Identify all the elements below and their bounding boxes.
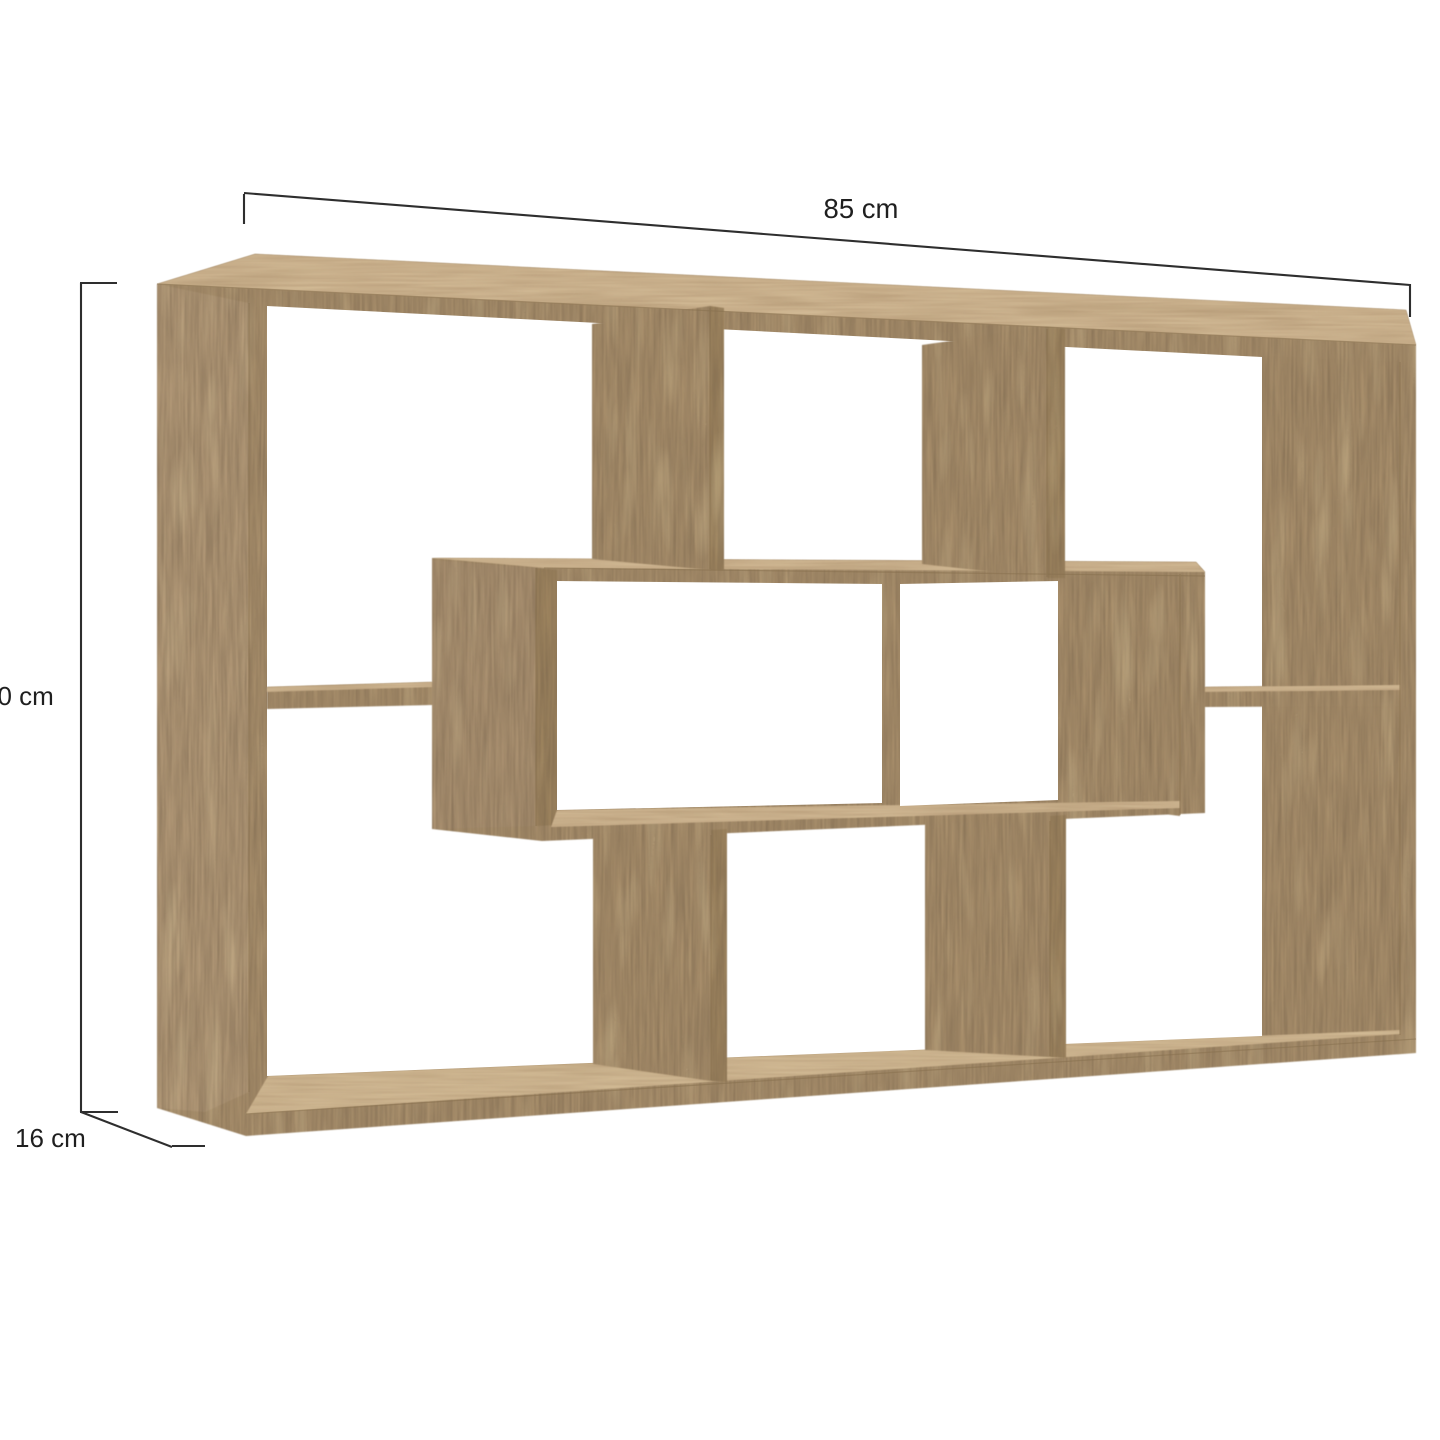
svg-text:85 cm: 85 cm (824, 193, 899, 224)
svg-text:16 cm: 16 cm (15, 1123, 86, 1153)
svg-text:50 cm: 50 cm (0, 681, 54, 711)
